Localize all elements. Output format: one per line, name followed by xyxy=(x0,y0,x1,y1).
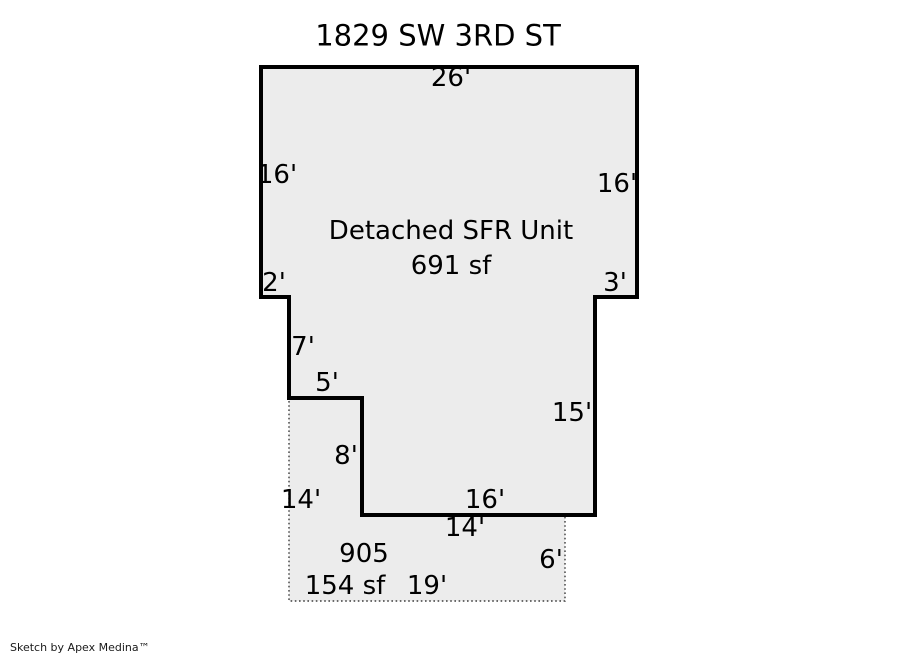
attached-area-size: 154 sf xyxy=(305,573,386,599)
dim-main-right-step: 3' xyxy=(603,270,627,296)
dim-main-right-upper: 16' xyxy=(597,171,637,197)
dim-main-left-upper: 16' xyxy=(257,162,297,188)
dim-main-inset-top: 5' xyxy=(315,370,339,396)
dim-main-inset-side: 8' xyxy=(334,443,358,469)
floor-plan-canvas xyxy=(0,0,900,660)
dim-attached-right: 6' xyxy=(539,547,563,573)
attached-area-name: 905 xyxy=(339,541,389,567)
dim-main-right-lower: 15' xyxy=(552,400,592,426)
property-sketch-page: 1829 SW 3RD ST 26' 16' 16' 2' 3' 7' 5' 1… xyxy=(0,0,900,660)
dim-attached-left: 14' xyxy=(281,487,321,513)
dim-attached-top: 14' xyxy=(445,515,485,541)
sketch-title: 1829 SW 3RD ST xyxy=(315,22,561,51)
main-unit-area: 691 sf xyxy=(411,253,492,279)
sketch-credit: Sketch by Apex Medina™ xyxy=(10,641,150,654)
dim-main-left-mid: 7' xyxy=(291,334,315,360)
dim-main-left-step: 2' xyxy=(262,270,286,296)
dim-attached-bottom: 19' xyxy=(407,573,447,599)
dim-main-top: 26' xyxy=(431,65,471,91)
main-unit-name: Detached SFR Unit xyxy=(329,218,573,244)
dim-main-bottom: 16' xyxy=(465,487,505,513)
